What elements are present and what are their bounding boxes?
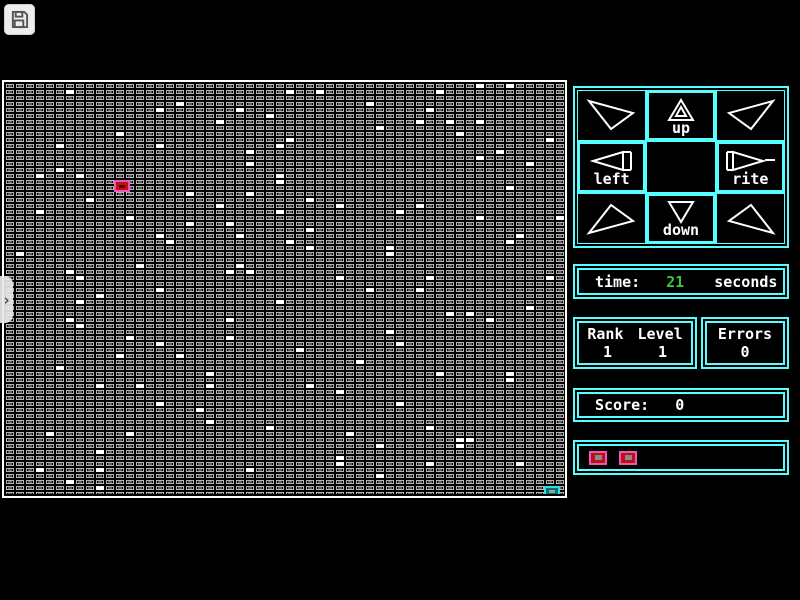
move-left-button[interactable]: left	[578, 142, 645, 191]
arrow-up-left-icon	[581, 96, 643, 136]
dirpad-center	[647, 142, 714, 191]
time-label: time:	[595, 273, 640, 291]
token-face-icon	[595, 455, 602, 460]
level-value: 1	[658, 343, 667, 361]
time-unit-label: seconds	[714, 273, 777, 291]
arrow-up-right-icon	[719, 96, 781, 136]
score-label: Score:	[595, 396, 649, 414]
rank-level-panel: Rank Level 1 1	[573, 317, 697, 369]
time-value: 21	[666, 273, 684, 291]
chevron-right-icon: ›	[2, 291, 11, 309]
move-down-left-button[interactable]	[578, 194, 645, 243]
exit-cell	[544, 486, 560, 494]
errors-label: Errors	[718, 325, 772, 343]
move-down-right-button[interactable]	[717, 194, 784, 243]
move-up-right-button[interactable]	[717, 91, 784, 140]
move-up-button[interactable]: up	[647, 91, 714, 140]
arrow-down-right-icon	[719, 198, 781, 238]
level-label: Level	[637, 325, 682, 343]
token-face-icon	[625, 455, 632, 460]
maze-board[interactable]	[2, 80, 567, 498]
rank-value: 1	[603, 343, 612, 361]
time-panel: time: 21 seconds	[573, 264, 789, 299]
player-cursor	[114, 180, 130, 192]
save-button[interactable]	[4, 4, 35, 35]
rite-label: rite	[732, 172, 768, 186]
errors-value: 0	[740, 343, 749, 361]
arrow-down-left-icon	[581, 198, 643, 238]
token-panel	[573, 440, 789, 475]
score-panel: Score: 0	[573, 388, 789, 422]
save-icon	[10, 10, 29, 29]
side-panel-toggle[interactable]: ›	[0, 276, 13, 323]
move-up-left-button[interactable]	[578, 91, 645, 140]
move-down-button[interactable]: down	[647, 194, 714, 243]
score-value: 0	[675, 396, 684, 414]
left-label: left	[594, 172, 630, 186]
up-label: up	[672, 121, 690, 135]
token-button-1[interactable]	[589, 451, 607, 465]
game-screen: › up	[0, 0, 800, 600]
errors-panel: Errors 0	[701, 317, 789, 369]
direction-pad: up left rite	[573, 86, 789, 248]
token-button-2[interactable]	[619, 451, 637, 465]
down-label: down	[663, 223, 699, 237]
maze-grid[interactable]	[6, 84, 566, 494]
rank-label: Rank	[587, 325, 623, 343]
move-right-button[interactable]: rite	[717, 142, 784, 191]
